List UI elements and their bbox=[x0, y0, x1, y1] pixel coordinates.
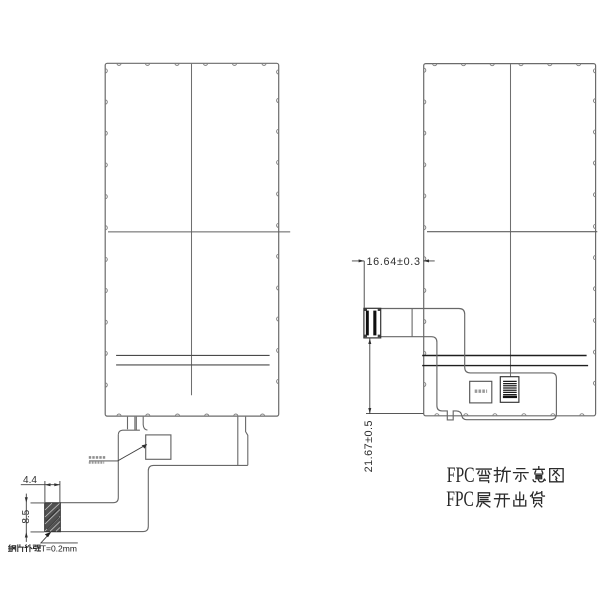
svg-text:T=0.2mm: T=0.2mm bbox=[41, 544, 77, 554]
svg-text:4.4: 4.4 bbox=[23, 475, 37, 486]
svg-text:16.64±0.3: 16.64±0.3 bbox=[366, 256, 420, 268]
svg-text:21.67±0.5: 21.67±0.5 bbox=[363, 420, 375, 472]
svg-text:8.5: 8.5 bbox=[21, 509, 32, 523]
svg-text:FPC: FPC bbox=[446, 488, 474, 512]
svg-text:FPC: FPC bbox=[447, 463, 475, 487]
